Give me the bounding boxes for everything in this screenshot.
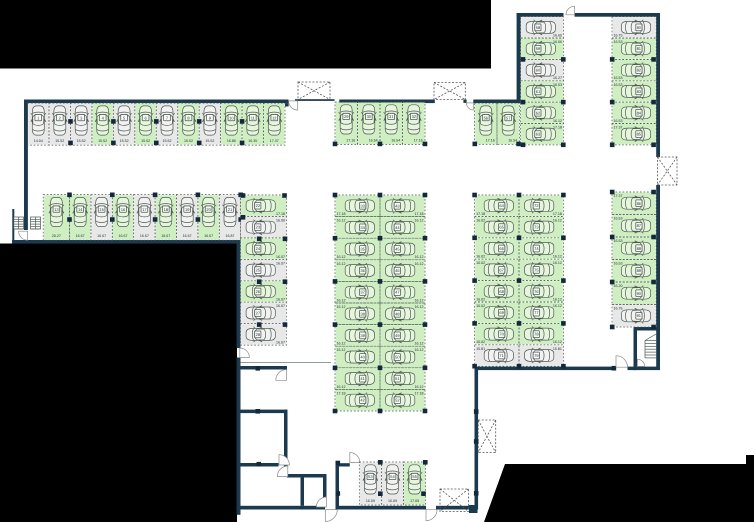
svg-text:15.52: 15.52 <box>163 139 172 143</box>
svg-text:16.35: 16.35 <box>248 139 257 143</box>
svg-text:39: 39 <box>360 333 365 338</box>
svg-text:30: 30 <box>367 114 372 119</box>
svg-text:38: 38 <box>360 311 365 316</box>
svg-text:51: 51 <box>395 376 400 381</box>
svg-text:19: 19 <box>185 207 190 212</box>
svg-text:17.18: 17.18 <box>553 125 562 129</box>
svg-text:80: 80 <box>637 25 642 30</box>
svg-text:16.76: 16.76 <box>614 307 623 311</box>
svg-text:66: 66 <box>499 246 504 251</box>
svg-text:67: 67 <box>499 267 504 272</box>
svg-text:16.12: 16.12 <box>553 218 562 222</box>
svg-text:16.12: 16.12 <box>415 262 424 266</box>
svg-text:16.12: 16.12 <box>553 119 562 123</box>
svg-text:50: 50 <box>395 355 400 360</box>
svg-text:59: 59 <box>536 46 541 51</box>
svg-text:82: 82 <box>637 68 642 73</box>
svg-text:16.02: 16.02 <box>476 304 485 308</box>
svg-text:17.16: 17.16 <box>414 139 423 143</box>
svg-text:17.09: 17.09 <box>410 499 419 503</box>
svg-text:40: 40 <box>360 355 365 360</box>
svg-text:15.81: 15.81 <box>553 347 562 351</box>
svg-text:15.52: 15.52 <box>55 139 64 143</box>
svg-text:29: 29 <box>344 114 349 119</box>
svg-text:16.12: 16.12 <box>337 298 346 302</box>
svg-text:10: 10 <box>229 115 234 120</box>
svg-text:16.27: 16.27 <box>553 76 562 80</box>
svg-text:16.67: 16.67 <box>76 234 85 238</box>
svg-text:17.18: 17.18 <box>276 212 285 216</box>
svg-text:72: 72 <box>534 203 539 208</box>
svg-text:15.52: 15.52 <box>77 139 86 143</box>
svg-text:15.52: 15.52 <box>120 139 129 143</box>
svg-text:31: 31 <box>389 114 394 119</box>
svg-text:17.18: 17.18 <box>415 212 424 216</box>
svg-text:78: 78 <box>534 332 539 337</box>
svg-text:75: 75 <box>534 267 539 272</box>
svg-text:16.09: 16.09 <box>388 499 397 503</box>
svg-text:16.02: 16.02 <box>476 261 485 265</box>
svg-text:16.02: 16.02 <box>476 255 485 259</box>
svg-text:18: 18 <box>164 207 169 212</box>
svg-text:57: 57 <box>506 115 511 120</box>
svg-text:42: 42 <box>360 398 365 403</box>
svg-text:61: 61 <box>536 89 541 94</box>
svg-text:54: 54 <box>390 474 395 479</box>
svg-text:81: 81 <box>637 46 642 51</box>
svg-text:16.66: 16.66 <box>553 40 562 44</box>
svg-text:16.67: 16.67 <box>161 234 170 238</box>
svg-text:14.04: 14.04 <box>34 139 43 143</box>
svg-text:62: 62 <box>536 110 541 115</box>
svg-text:74: 74 <box>534 246 539 251</box>
svg-text:16.02: 16.02 <box>476 297 485 301</box>
svg-text:63: 63 <box>536 132 541 137</box>
svg-text:13: 13 <box>54 207 59 212</box>
svg-text:43: 43 <box>395 203 400 208</box>
svg-text:28: 28 <box>256 332 261 337</box>
svg-text:16.12: 16.12 <box>415 342 424 346</box>
svg-text:16.75: 16.75 <box>614 33 623 37</box>
svg-text:16.12: 16.12 <box>415 219 424 223</box>
svg-text:17.16: 17.16 <box>346 139 355 143</box>
svg-text:79: 79 <box>534 353 539 358</box>
svg-text:58: 58 <box>536 25 541 30</box>
svg-text:16.12: 16.12 <box>415 385 424 389</box>
svg-text:16.87: 16.87 <box>226 234 235 238</box>
svg-text:33: 33 <box>360 203 365 208</box>
svg-text:65: 65 <box>499 225 504 230</box>
svg-text:16.20: 16.20 <box>614 284 623 288</box>
svg-text:69: 69 <box>499 310 504 315</box>
svg-text:16.54: 16.54 <box>391 139 400 143</box>
svg-text:37: 37 <box>360 290 365 295</box>
svg-text:46: 46 <box>395 268 400 273</box>
svg-text:17.37: 17.37 <box>614 125 623 129</box>
svg-text:16.02: 16.02 <box>476 340 485 344</box>
svg-text:20.27: 20.27 <box>52 234 61 238</box>
svg-text:15: 15 <box>99 207 104 212</box>
svg-text:15.52: 15.52 <box>184 139 193 143</box>
svg-text:87: 87 <box>637 223 642 228</box>
svg-text:45: 45 <box>395 247 400 252</box>
svg-text:16.07: 16.07 <box>276 261 285 265</box>
svg-text:35: 35 <box>360 247 365 252</box>
svg-text:60: 60 <box>536 68 541 73</box>
svg-text:22: 22 <box>256 203 261 208</box>
svg-text:16.12: 16.12 <box>415 255 424 259</box>
svg-text:83: 83 <box>637 89 642 94</box>
svg-text:15.52: 15.52 <box>141 139 150 143</box>
svg-text:48: 48 <box>395 311 400 316</box>
svg-text:16: 16 <box>121 207 126 212</box>
svg-text:16.53: 16.53 <box>614 262 623 266</box>
svg-text:17.18: 17.18 <box>553 212 562 216</box>
svg-text:16.53: 16.53 <box>553 83 562 87</box>
svg-text:34: 34 <box>360 225 365 230</box>
svg-text:16.54: 16.54 <box>508 139 517 143</box>
svg-text:16.12: 16.12 <box>337 342 346 346</box>
svg-text:16.67: 16.67 <box>119 234 128 238</box>
svg-text:64: 64 <box>499 203 504 208</box>
svg-text:68: 68 <box>499 289 504 294</box>
svg-text:16.53: 16.53 <box>614 119 623 123</box>
svg-text:16.53: 16.53 <box>614 239 623 243</box>
svg-text:16.12: 16.12 <box>415 305 424 309</box>
svg-text:16.12: 16.12 <box>415 348 424 352</box>
svg-text:27: 27 <box>256 311 261 316</box>
svg-text:24: 24 <box>256 246 261 251</box>
svg-text:16.07: 16.07 <box>276 298 285 302</box>
svg-text:16.65: 16.65 <box>553 33 562 37</box>
svg-text:15.81: 15.81 <box>476 347 485 351</box>
svg-text:16.12: 16.12 <box>337 385 346 389</box>
svg-text:73: 73 <box>534 225 539 230</box>
svg-text:17.37: 17.37 <box>614 194 623 198</box>
svg-text:16.53: 16.53 <box>614 217 623 221</box>
svg-text:76: 76 <box>534 289 539 294</box>
svg-text:17.18: 17.18 <box>337 391 346 395</box>
svg-text:47: 47 <box>395 290 400 295</box>
svg-text:89: 89 <box>637 268 642 273</box>
svg-text:16.12: 16.12 <box>553 340 562 344</box>
svg-text:20: 20 <box>206 207 211 212</box>
svg-text:16.12: 16.12 <box>337 262 346 266</box>
svg-text:16.12: 16.12 <box>337 219 346 223</box>
svg-text:88: 88 <box>637 246 642 251</box>
svg-text:71: 71 <box>499 353 504 358</box>
svg-text:17.18: 17.18 <box>337 212 346 216</box>
svg-text:16.12: 16.12 <box>553 261 562 265</box>
svg-text:15.52: 15.52 <box>98 139 107 143</box>
svg-text:26: 26 <box>256 289 261 294</box>
svg-text:49: 49 <box>395 333 400 338</box>
svg-text:32: 32 <box>412 114 417 119</box>
svg-text:23: 23 <box>256 225 261 230</box>
svg-text:44: 44 <box>395 225 400 230</box>
svg-text:86: 86 <box>637 201 642 206</box>
svg-text:16.07: 16.07 <box>276 341 285 345</box>
svg-text:55: 55 <box>412 474 417 479</box>
svg-text:16.12: 16.12 <box>337 305 346 309</box>
svg-text:77: 77 <box>534 310 539 315</box>
svg-text:16.67: 16.67 <box>204 234 213 238</box>
svg-text:16.53: 16.53 <box>614 83 623 87</box>
svg-text:52: 52 <box>395 398 400 403</box>
svg-text:16.67: 16.67 <box>140 234 149 238</box>
svg-text:16.54: 16.54 <box>369 139 378 143</box>
svg-text:53: 53 <box>368 474 373 479</box>
svg-text:41: 41 <box>360 376 365 381</box>
svg-text:17.37: 17.37 <box>270 139 279 143</box>
svg-text:16.12: 16.12 <box>337 348 346 352</box>
svg-text:16.67: 16.67 <box>183 234 192 238</box>
svg-text:84: 84 <box>637 110 642 115</box>
svg-text:91: 91 <box>637 313 642 318</box>
svg-text:16.53: 16.53 <box>614 76 623 80</box>
svg-text:16.12: 16.12 <box>415 298 424 302</box>
svg-text:16.12: 16.12 <box>553 255 562 259</box>
svg-text:15.52: 15.52 <box>205 139 214 143</box>
svg-text:21: 21 <box>228 207 233 212</box>
svg-text:12: 12 <box>272 115 277 120</box>
svg-text:16.00: 16.00 <box>276 218 285 222</box>
svg-text:16.53: 16.53 <box>614 40 623 44</box>
svg-text:17.18: 17.18 <box>415 391 424 395</box>
svg-text:16.86: 16.86 <box>227 139 236 143</box>
svg-text:14: 14 <box>78 207 83 212</box>
svg-text:25: 25 <box>256 268 261 273</box>
svg-text:16.67: 16.67 <box>97 234 106 238</box>
svg-text:70: 70 <box>499 332 504 337</box>
svg-text:16.07: 16.07 <box>276 255 285 259</box>
svg-text:17: 17 <box>142 207 147 212</box>
svg-text:17.18: 17.18 <box>476 212 485 216</box>
svg-text:16.09: 16.09 <box>366 499 375 503</box>
svg-text:85: 85 <box>637 132 642 137</box>
svg-text:90: 90 <box>637 291 642 296</box>
svg-text:16.12: 16.12 <box>337 255 346 259</box>
svg-text:16.07: 16.07 <box>276 304 285 308</box>
svg-text:36: 36 <box>360 268 365 273</box>
svg-text:16.12: 16.12 <box>553 304 562 308</box>
svg-text:56: 56 <box>484 115 489 120</box>
svg-text:17.16: 17.16 <box>486 139 495 143</box>
svg-text:16.02: 16.02 <box>476 218 485 222</box>
svg-text:16.12: 16.12 <box>553 297 562 301</box>
